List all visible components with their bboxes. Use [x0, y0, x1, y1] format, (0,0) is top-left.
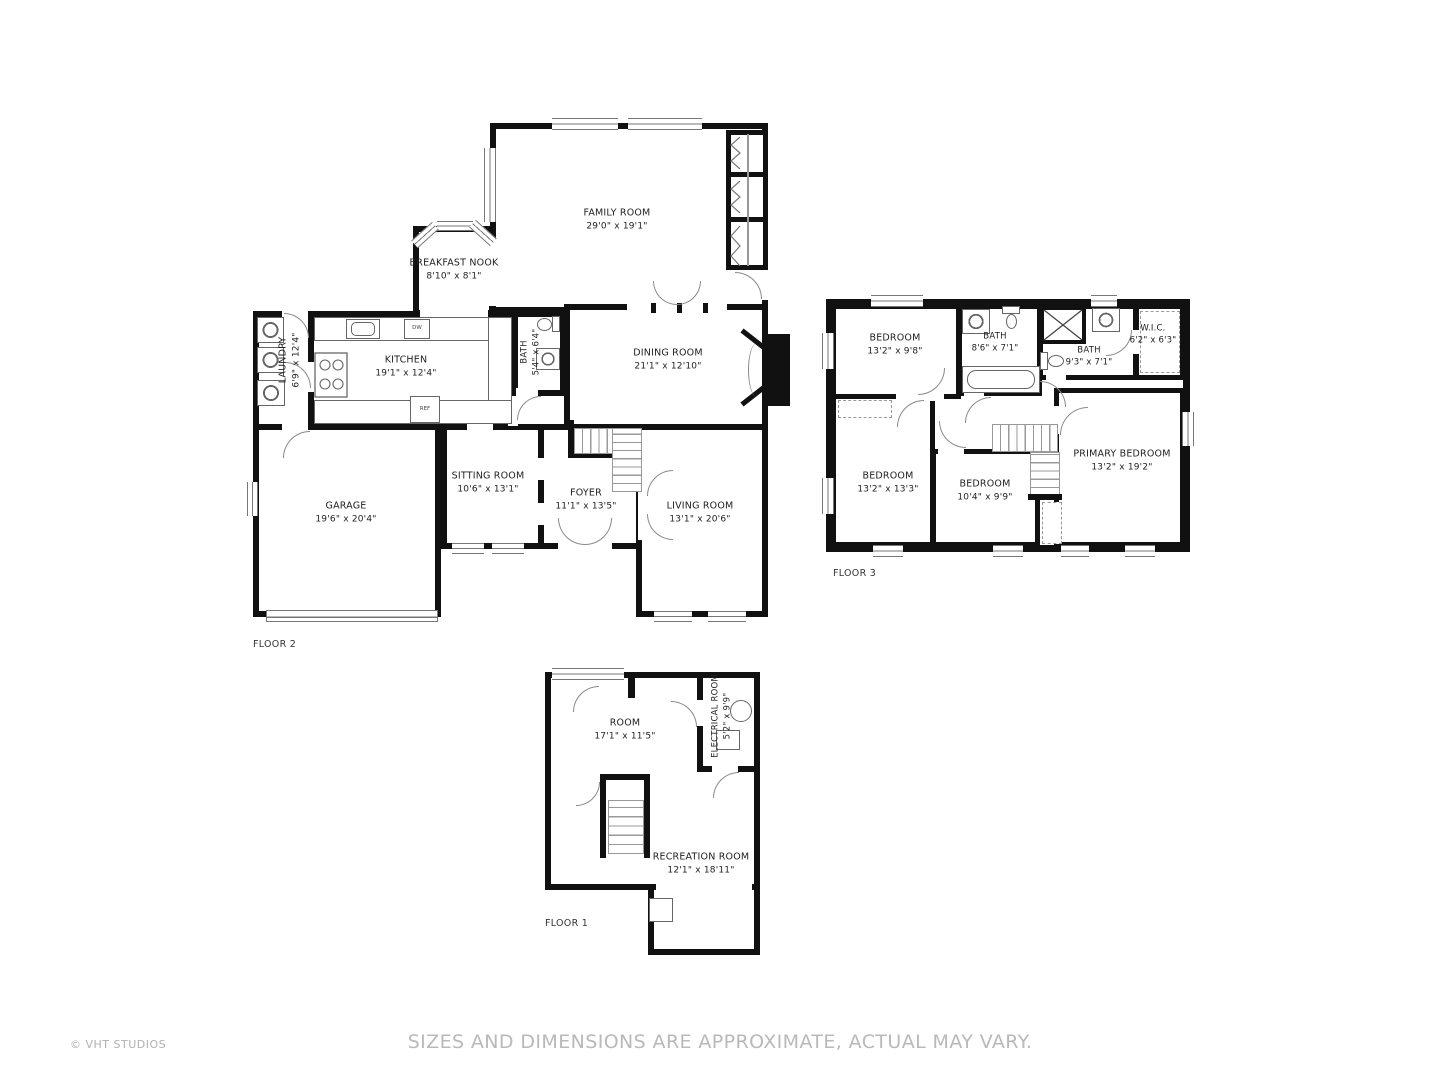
room-dims: 19'6" x 20'4" — [315, 513, 376, 526]
wall-stub — [628, 672, 635, 698]
window — [873, 545, 903, 557]
ref-label: REF — [412, 407, 438, 413]
post — [651, 303, 656, 313]
window — [822, 478, 834, 514]
window — [492, 543, 524, 554]
floor2-label: FLOOR 2 — [253, 639, 296, 650]
label-bedroom2: BEDROOM 13'2" x 13'3" — [857, 470, 918, 497]
label-room: ROOM 17'1" x 11'5" — [594, 717, 655, 744]
room-name: DINING ROOM — [633, 347, 702, 361]
post — [703, 303, 708, 313]
window — [452, 543, 484, 554]
floor3-label: FLOOR 3 — [833, 568, 876, 579]
room-name: ROOM — [594, 717, 655, 731]
kitchen-sink-basin — [351, 322, 375, 336]
door-gap-family-right — [762, 270, 772, 300]
label-foyer: FOYER 11'1" x 13'5" — [555, 487, 616, 514]
closet-rod — [747, 134, 749, 266]
label-laundry: LAUNDRY 6'9" x 12'4" — [277, 332, 304, 387]
room-dims: 13'2" x 9'8" — [867, 345, 922, 358]
label-garage: GARAGE 19'6" x 20'4" — [315, 500, 376, 527]
label-recreation-room: RECREATION ROOM 12'1" x 18'11" — [653, 851, 750, 878]
room-name: SITTING ROOM — [452, 470, 525, 484]
dw-label: DW — [406, 326, 428, 332]
window — [1061, 545, 1089, 557]
room-dims: 12'1" x 18'11" — [653, 864, 750, 877]
room-dims: 13'1" x 20'6" — [667, 513, 734, 526]
linen-closet — [1042, 502, 1062, 544]
window-well — [649, 898, 673, 922]
room-dims: 17'1" x 11'5" — [594, 730, 655, 743]
stairs — [574, 428, 614, 454]
label-bedroom1: BEDROOM 13'2" x 9'8" — [867, 332, 922, 359]
label-bath1: BATH 8'6" x 7'1" — [972, 331, 1019, 356]
stairs — [612, 428, 642, 492]
stairs — [992, 424, 1058, 452]
floor-plan-page: DW REF — [0, 0, 1440, 1080]
label-living-room: LIVING ROOM 13'1" x 20'6" — [667, 500, 734, 527]
window — [822, 333, 834, 369]
counter — [488, 317, 512, 413]
room-name: BATH — [1066, 345, 1113, 357]
fireplace-hearth — [748, 344, 764, 396]
label-dining-room: DINING ROOM 21'1" x 12'10" — [633, 347, 702, 374]
room-dims: 13'2" x 13'3" — [857, 483, 918, 496]
bifold-door-icon — [729, 226, 742, 266]
room-dims: 5'4" x 6'4" — [531, 329, 543, 376]
garage-door — [266, 610, 438, 622]
floor1-join — [656, 882, 752, 892]
toilet-bowl — [1006, 314, 1017, 329]
room-name: ELECTRICAL ROOM — [710, 674, 722, 758]
room-name: BATH — [972, 331, 1019, 343]
room-name: FOYER — [555, 487, 616, 501]
room-dims: 6'2" x 6'3" — [1130, 335, 1177, 347]
room-dims: 21'1" x 12'10" — [633, 360, 702, 373]
window — [628, 118, 702, 130]
window — [247, 482, 258, 516]
room-name: BATH — [519, 329, 531, 376]
window — [484, 148, 496, 222]
room-dims: 6'9" x 12'4" — [290, 332, 303, 387]
bifold-door-icon — [729, 181, 742, 213]
room-name: PRIMARY BEDROOM — [1073, 448, 1170, 462]
bay-window — [437, 221, 473, 231]
stair-wall — [600, 774, 650, 780]
room-dims: 8'6" x 7'1" — [972, 343, 1019, 355]
room-name: BEDROOM — [857, 470, 918, 484]
hall-closet — [838, 400, 892, 418]
label-bedroom3: BEDROOM 10'4" x 9'9" — [957, 478, 1012, 505]
label-sitting-room: SITTING ROOM 10'6" x 13'1" — [452, 470, 525, 497]
room-dims: 29'0" x 19'1" — [584, 220, 651, 233]
label-breakfast-nook: BREAKFAST NOOK 8'10" x 8'1" — [410, 257, 499, 284]
label-electrical-room: ELECTRICAL ROOM 5'2" x 9'9" — [710, 674, 735, 758]
room-dims: 10'6" x 13'1" — [452, 483, 525, 496]
toilet-tank — [1002, 306, 1020, 314]
door-gap-electrical — [697, 700, 703, 726]
label-bath-floor2: BATH 5'4" x 6'4" — [519, 329, 544, 376]
room-dims: 19'1" x 12'4" — [375, 367, 436, 380]
floor1-label: FLOOR 1 — [545, 918, 588, 929]
door-gap-bath2 — [1046, 374, 1066, 382]
window — [552, 668, 624, 680]
room-dims: 10'4" x 9'9" — [957, 491, 1012, 504]
window — [552, 118, 618, 130]
window — [871, 295, 923, 307]
window — [708, 611, 746, 622]
room-name: BREAKFAST NOOK — [410, 257, 499, 271]
label-family-room: FAMILY ROOM 29'0" x 19'1" — [584, 207, 651, 234]
window — [1125, 545, 1155, 557]
toilet-tank — [552, 316, 560, 332]
window — [993, 545, 1023, 557]
room-dims: 8'10" x 8'1" — [410, 270, 499, 283]
room-dims: 11'1" x 13'5" — [555, 500, 616, 513]
label-primary-bedroom: PRIMARY BEDROOM 13'2" x 19'2" — [1073, 448, 1170, 475]
stair-wall — [644, 774, 650, 858]
room-name: FAMILY ROOM — [584, 207, 651, 221]
door-arc — [517, 396, 541, 420]
room-name: BEDROOM — [867, 332, 922, 346]
room-name: LIVING ROOM — [667, 500, 734, 514]
bath-sink — [1092, 308, 1120, 332]
room-name: W.I.C. — [1130, 323, 1177, 335]
bathtub-basin — [967, 370, 1035, 389]
room-name: RECREATION ROOM — [653, 851, 750, 865]
bifold-door-icon — [729, 137, 742, 169]
toilet-tank — [1040, 352, 1048, 370]
label-kitchen: KITCHEN 19'1" x 12'4" — [375, 354, 436, 381]
window — [1182, 412, 1194, 446]
room-dims: 5'2" x 9'9" — [722, 674, 734, 758]
label-wic: W.I.C. 6'2" x 6'3" — [1130, 323, 1177, 348]
disclaimer-text: SIZES AND DIMENSIONS ARE APPROXIMATE, AC… — [0, 1031, 1440, 1053]
shower-icon — [1040, 306, 1086, 344]
room-dims: 9'3" x 7'1" — [1066, 357, 1113, 369]
room-dims: 13'2" x 19'2" — [1073, 461, 1170, 474]
window — [1091, 295, 1117, 307]
stair-wall — [600, 774, 606, 858]
toilet-bowl — [1048, 355, 1064, 367]
stove-icon — [314, 352, 348, 398]
room-name: LAUNDRY — [277, 332, 291, 387]
stairs — [608, 800, 644, 854]
stair-wall — [1028, 494, 1062, 500]
opening-sitting-foyer — [537, 458, 546, 480]
opening-sitting-foyer — [537, 503, 546, 525]
fireplace — [764, 334, 790, 406]
window — [654, 611, 692, 622]
stairs — [1030, 452, 1060, 496]
room-name: BEDROOM — [957, 478, 1012, 492]
room-name: GARAGE — [315, 500, 376, 514]
label-bath2: BATH 9'3" x 7'1" — [1066, 345, 1113, 370]
door-gap-electrical-bottom — [712, 766, 738, 772]
room-name: KITCHEN — [375, 354, 436, 368]
